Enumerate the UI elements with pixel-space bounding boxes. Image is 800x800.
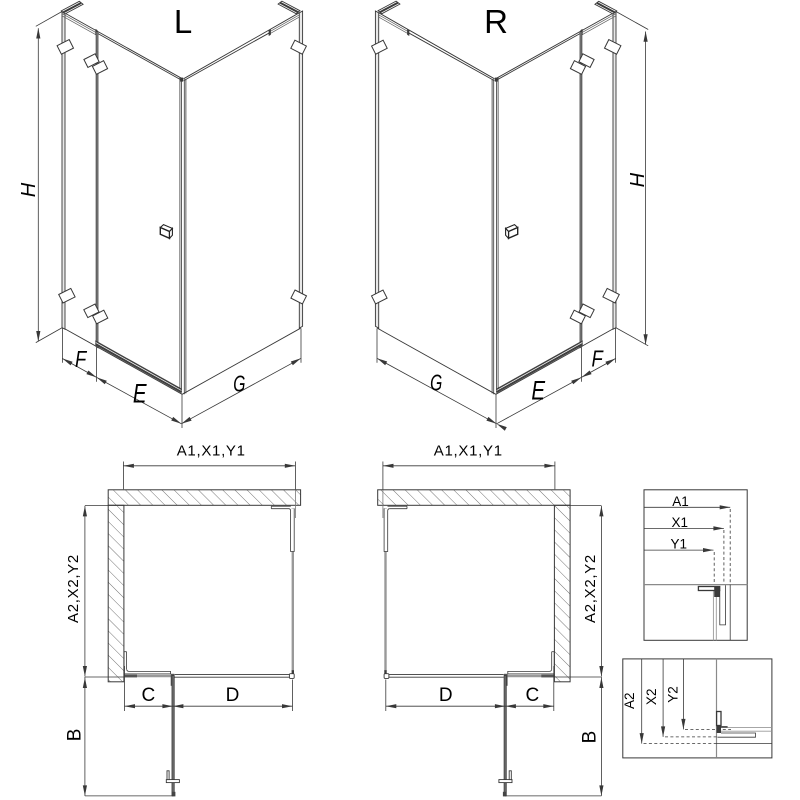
svg-text:C: C — [526, 685, 540, 706]
svg-text:Y1: Y1 — [670, 537, 687, 552]
svg-text:F: F — [75, 347, 87, 372]
svg-text:E: E — [531, 376, 546, 406]
svg-text:G: G — [430, 371, 442, 397]
svg-text:A1: A1 — [672, 494, 689, 509]
svg-text:H: H — [625, 172, 647, 187]
svg-text:F: F — [591, 347, 603, 372]
svg-text:X1: X1 — [672, 515, 689, 530]
svg-text:B: B — [580, 731, 601, 744]
svg-text:H: H — [18, 182, 40, 197]
svg-text:C: C — [142, 685, 156, 706]
svg-text:G: G — [233, 372, 245, 398]
svg-text:B: B — [64, 729, 85, 742]
svg-text:A2: A2 — [622, 692, 637, 709]
svg-text:L: L — [174, 3, 192, 40]
svg-text:Y2: Y2 — [666, 686, 681, 703]
svg-text:D: D — [439, 685, 453, 706]
svg-text:A2,X2,Y2: A2,X2,Y2 — [582, 554, 599, 623]
svg-text:A1,X1,Y1: A1,X1,Y1 — [177, 442, 246, 459]
svg-text:A1,X1,Y1: A1,X1,Y1 — [434, 442, 503, 459]
svg-text:X2: X2 — [644, 689, 659, 706]
svg-text:D: D — [226, 685, 240, 706]
svg-text:R: R — [484, 3, 508, 40]
svg-text:E: E — [133, 379, 148, 409]
svg-text:A2,X2,Y2: A2,X2,Y2 — [65, 554, 82, 623]
